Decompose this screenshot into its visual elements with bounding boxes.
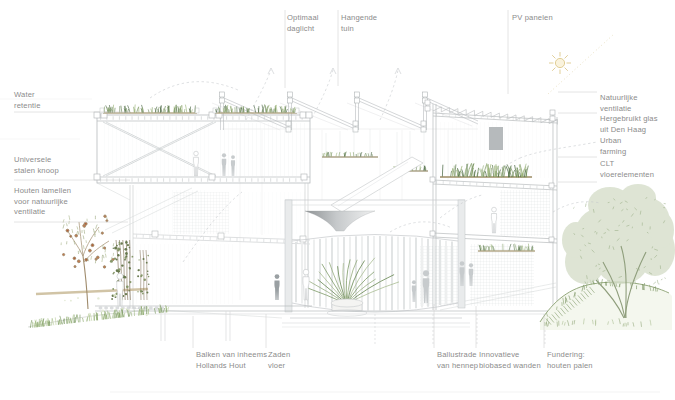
label-clt-vloerelementen: CLT vloerelementen [600, 159, 654, 180]
label-biobased-wanden: Innovatieve biobased wanden [479, 350, 541, 371]
label-hangende-tuin: Hangende tuin [341, 13, 377, 34]
label-zaden-vloer: Zaden vloer [268, 350, 290, 371]
right-landscape [540, 184, 675, 330]
label-hergebruikt-glas: Hergebruikt glas uit Den Haag [600, 114, 658, 135]
person-figure [117, 273, 124, 306]
label-water-retentie: Water retentie [14, 90, 41, 111]
label-natuurlijke-ventilatie: Natuurlijke ventilatie [600, 93, 638, 114]
label-ballustrade-hennep: Ballustrade van hennep [437, 350, 478, 371]
label-optimaal-daglicht: Optimaal daglicht [287, 13, 319, 34]
label-pv-panelen: PV panelen [512, 13, 553, 24]
architectural-diagram: Optimaal daglicht Hangende tuin PV panel… [0, 0, 675, 400]
person-figure [194, 151, 199, 176]
left-module [94, 112, 312, 183]
ground-foundation [95, 306, 558, 344]
label-universele-stalen-knoop: Universele stalen knoop [14, 155, 59, 176]
label-fundering-houten-palen: Fundering: houten palen [547, 350, 593, 371]
label-balken-hollands-hout: Balken van inheems Hollands Hout [196, 350, 267, 371]
reused-glass-window [489, 127, 503, 150]
fruit-tree [61, 215, 114, 309]
label-urban-farming: Urban farming [600, 136, 626, 157]
person-figure [303, 269, 309, 300]
person-figure [274, 274, 279, 300]
person-figure [491, 207, 496, 233]
slide-chute [331, 157, 423, 212]
guide-lines [0, 99, 660, 392]
section-illustration [0, 0, 675, 400]
sun-icon [549, 52, 571, 74]
funnel-column [305, 211, 375, 231]
label-houten-lamellen: Houten lamellen voor natuurlijke ventila… [14, 186, 71, 218]
